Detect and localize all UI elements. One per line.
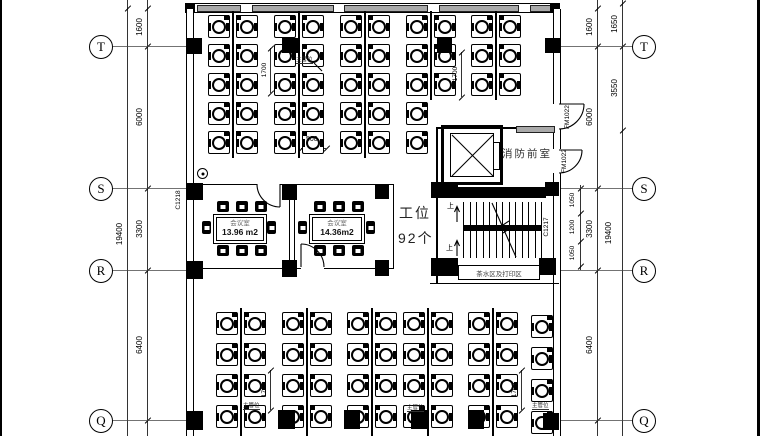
structural-column (186, 261, 203, 279)
chair-icon (344, 78, 358, 92)
monitor-icon (298, 343, 303, 348)
monitor-icon (232, 374, 237, 379)
chair-icon (314, 410, 328, 424)
workstation-desk (366, 71, 391, 97)
monitor-icon (499, 15, 504, 20)
grid-line-R-left (111, 270, 188, 271)
monitor-icon (232, 405, 237, 410)
workstation-desk (469, 71, 494, 97)
dimension-line (127, 0, 128, 436)
chair-icon (212, 20, 226, 34)
chair-icon (212, 107, 226, 121)
meeting-room2-door-gap (301, 264, 324, 269)
workstation-desk (429, 403, 454, 429)
chair-icon (314, 348, 328, 362)
grid-bubble-S-right: S (632, 177, 656, 201)
workstation-desk (404, 42, 429, 68)
workstation-desk (300, 100, 325, 126)
structural-column (186, 411, 203, 430)
meeting-room1-area: 13.96 m2 (222, 228, 258, 238)
monitor-icon (302, 15, 307, 20)
meeting-chair-icon (202, 221, 211, 234)
monitor-icon (496, 312, 501, 317)
monitor-icon (484, 374, 489, 379)
chair-icon (500, 348, 514, 362)
monitor-icon (236, 73, 241, 78)
workstation-desk (404, 129, 429, 155)
stair-up-label-2: 上 (446, 243, 453, 253)
monitor-icon (368, 102, 373, 107)
dim-left-3300: 3300 (134, 207, 144, 251)
elevator-car (450, 133, 494, 177)
monitor-icon (547, 347, 552, 352)
workstation-desk (280, 372, 305, 398)
workstation-desk (272, 129, 297, 155)
grid-bubble-S-left: S (89, 177, 113, 201)
chair-icon (351, 348, 365, 362)
workstation-desk (338, 71, 363, 97)
monitor-icon (431, 312, 436, 317)
workstation-desk (345, 310, 370, 336)
workstation-desk (338, 129, 363, 155)
workstation-desk (308, 372, 333, 398)
supervisor-tag-bottom3: 主管位 (532, 401, 549, 410)
dim-right-total: 19400 (603, 211, 613, 255)
workstation-desk (401, 372, 426, 398)
dim-1700-top-left: 1700 (259, 48, 269, 92)
monitor-icon (363, 312, 368, 317)
chair-icon (240, 107, 254, 121)
chair-icon (438, 20, 452, 34)
workstation-desk (404, 13, 429, 39)
workstation-desk (300, 71, 325, 97)
chair-icon (372, 107, 386, 121)
monitor-icon (290, 73, 295, 78)
chair-icon (306, 20, 320, 34)
chair-icon (410, 136, 424, 150)
monitor-icon (290, 131, 295, 136)
workstation-desk (234, 13, 259, 39)
workstation-desk (206, 100, 231, 126)
workstation-desk (466, 310, 491, 336)
chair-icon (535, 320, 549, 334)
structural-column (545, 38, 560, 53)
monitor-icon (484, 405, 489, 410)
grid-line-T-left (111, 46, 188, 47)
structural-column (282, 260, 297, 277)
workstation-desk (272, 100, 297, 126)
monitor-icon (363, 405, 368, 410)
workstation-desk (373, 403, 398, 429)
chair-icon (372, 20, 386, 34)
monitor-icon (484, 312, 489, 317)
chair-icon (475, 20, 489, 34)
desk-cluster (404, 100, 429, 158)
workstation-desk (234, 129, 259, 155)
north-window-2 (252, 5, 334, 12)
east-wall-upper (553, 9, 561, 104)
stair-up-label-1: 上 (447, 201, 454, 211)
chair-icon (410, 20, 424, 34)
chair-icon (472, 379, 486, 393)
dim-500: 500 (306, 136, 318, 143)
monitor-icon (419, 374, 424, 379)
monitor-icon (375, 343, 380, 348)
meeting-chair-icon (298, 221, 307, 234)
workstation-desk (214, 403, 239, 429)
meeting-room1-table: 会议室 13.96 m2 (213, 214, 267, 244)
supervisor-tag-bottom2: 主管位 (407, 403, 424, 412)
monitor-icon (363, 374, 368, 379)
workstation-desk (429, 372, 454, 398)
structural-column (468, 410, 484, 429)
monitor-icon (356, 15, 361, 20)
tea-print-text: 茶水区及打印区 (476, 268, 522, 278)
desk-partition (232, 11, 235, 158)
chair-icon (344, 20, 358, 34)
chair-icon (306, 107, 320, 121)
chair-icon (344, 107, 358, 121)
chair-icon (407, 348, 421, 362)
workstation-desk (214, 341, 239, 367)
grid-bubble-Q-right: Q (632, 409, 656, 433)
chair-icon (351, 379, 365, 393)
monitor-icon (298, 405, 303, 410)
monitor-icon (375, 312, 380, 317)
workstation-desk (497, 42, 522, 68)
workstation-desk (529, 377, 554, 403)
dimension-line (622, 0, 623, 436)
dim-left-6000: 6000 (134, 95, 144, 139)
monitor-icon (375, 374, 380, 379)
meeting-room1-door-gap (257, 182, 280, 187)
dim-right-3300: 3300 (584, 207, 594, 251)
chair-icon (472, 317, 486, 331)
monitor-icon (422, 102, 427, 107)
monitor-icon (434, 73, 439, 78)
monitor-icon (244, 312, 249, 317)
chair-icon (372, 78, 386, 92)
chair-icon (379, 317, 393, 331)
chair-icon (435, 379, 449, 393)
chair-icon (410, 49, 424, 63)
workstation-desk (345, 341, 370, 367)
structural-column (282, 38, 298, 53)
stair-north-wall (451, 187, 546, 198)
workstation-desk (469, 13, 494, 39)
monitor-icon (368, 15, 373, 20)
pipe-symbol (197, 168, 208, 179)
workstation-count-line1: 工位 (399, 203, 431, 223)
desk-partition (371, 308, 374, 436)
workstation-desk (373, 341, 398, 367)
chair-icon (278, 20, 292, 34)
monitor-icon (419, 343, 424, 348)
grid-line-Q-right (559, 420, 633, 421)
tea-print-area-label: 茶水区及打印区 (458, 265, 540, 280)
monitor-icon (356, 44, 361, 49)
floor-plan-canvas: T S R Q T S R Q 1600 6000 3300 6400 1940… (0, 0, 760, 436)
meeting-room2-table: 会议室 14.36m2 (309, 214, 365, 244)
chair-icon (535, 352, 549, 366)
chair-icon (344, 136, 358, 150)
chair-icon (379, 410, 393, 424)
chair-icon (503, 78, 517, 92)
workstation-desk (494, 341, 519, 367)
fire-lobby-label: 消防前室 (502, 146, 552, 161)
structural-column (431, 182, 458, 198)
monitor-icon (298, 374, 303, 379)
structural-column (375, 184, 389, 199)
chair-icon (407, 317, 421, 331)
workstation-desk (242, 310, 267, 336)
monitor-icon (244, 374, 249, 379)
chair-icon (372, 136, 386, 150)
workstation-desk (234, 71, 259, 97)
workstation-desk (300, 13, 325, 39)
meeting-chair-icon (352, 201, 364, 212)
chair-icon (248, 410, 262, 424)
workstation-desk (366, 100, 391, 126)
monitor-icon (431, 374, 436, 379)
monitor-icon (236, 15, 241, 20)
chair-icon (410, 107, 424, 121)
chair-icon (220, 410, 234, 424)
fire-door-code-upper: FM1022 (562, 95, 572, 139)
meeting-chair-icon (217, 245, 229, 256)
chair-icon (212, 49, 226, 63)
workstation-desk (206, 71, 231, 97)
desk-partition (495, 11, 498, 100)
chair-icon (286, 379, 300, 393)
workstation-desk (494, 310, 519, 336)
monitor-icon (484, 343, 489, 348)
monitor-icon (496, 374, 501, 379)
meeting-chair-icon (255, 245, 267, 256)
chair-icon (212, 136, 226, 150)
monitor-icon (224, 44, 229, 49)
workstation-desk (206, 42, 231, 68)
dim-right-1650: 1650 (609, 2, 619, 46)
dim-right-1600: 1600 (584, 5, 594, 49)
workstation-desk (404, 100, 429, 126)
chair-icon (435, 317, 449, 331)
window-code-C1217: C1217 (541, 205, 551, 249)
dim-left-total: 19400 (114, 212, 124, 256)
chair-icon (278, 136, 292, 150)
monitor-icon (236, 131, 241, 136)
workstation-desk (234, 100, 259, 126)
monitor-icon (302, 102, 307, 107)
meeting-chair-icon (236, 245, 248, 256)
workstation-desk (366, 42, 391, 68)
dim-1700-bottom-right: 1700 (509, 368, 519, 412)
monitor-icon (302, 73, 307, 78)
structural-column (278, 410, 295, 429)
workstation-desk (469, 42, 494, 68)
monitor-icon (290, 102, 295, 107)
dim-right-1050b: 1050 (567, 231, 577, 275)
workstation-desk (497, 13, 522, 39)
structural-column (431, 258, 458, 276)
desk-partition (298, 11, 301, 158)
chair-icon (248, 317, 262, 331)
grid-bubble-R-right: R (632, 259, 656, 283)
structural-column (186, 183, 203, 200)
monitor-icon (499, 44, 504, 49)
workstation-desk (206, 129, 231, 155)
desk-partition (306, 308, 309, 436)
chair-icon (500, 410, 514, 424)
workstation-desk (373, 310, 398, 336)
dim-1700-top-right: 1700 (450, 52, 460, 96)
monitor-icon (232, 312, 237, 317)
dimension-line (580, 185, 581, 270)
elevator-door (493, 142, 500, 170)
workstation-desk (497, 71, 522, 97)
chair-icon (278, 78, 292, 92)
workstation-desk (338, 13, 363, 39)
monitor-icon (368, 44, 373, 49)
chair-icon (306, 78, 320, 92)
structural-column (539, 258, 556, 275)
meeting-chair-icon (255, 201, 267, 212)
chair-icon (435, 348, 449, 362)
monitor-icon (244, 343, 249, 348)
workstation-desk (429, 310, 454, 336)
monitor-icon (419, 312, 424, 317)
workstation-desk (280, 341, 305, 367)
dim-1700-bottom-left: 1700 (259, 368, 269, 412)
north-window-4 (439, 5, 519, 12)
north-window-1 (197, 5, 241, 12)
workstation-desk (429, 341, 454, 367)
dimension-line (521, 370, 522, 410)
structural-column (375, 260, 389, 276)
workstation-desk (529, 345, 554, 371)
workstation-desk (366, 13, 391, 39)
workstation-desk (401, 310, 426, 336)
chair-icon (240, 78, 254, 92)
meeting-chair-icon (267, 221, 276, 234)
workstation-desk (272, 13, 297, 39)
monitor-icon (356, 131, 361, 136)
monitor-icon (236, 102, 241, 107)
workstation-desk (366, 129, 391, 155)
chair-icon (248, 348, 262, 362)
workstation-desk (308, 341, 333, 367)
meeting-chair-icon (217, 201, 229, 212)
workstation-desk (345, 372, 370, 398)
desk-partition (364, 11, 367, 158)
workstation-desk (373, 372, 398, 398)
meeting-chair-icon (366, 221, 375, 234)
monitor-icon (422, 44, 427, 49)
workstation-desk (466, 372, 491, 398)
chair-icon (475, 49, 489, 63)
monitor-icon (487, 44, 492, 49)
meeting-chair-icon (333, 201, 345, 212)
structural-column (437, 38, 452, 53)
chair-icon (286, 317, 300, 331)
workstation-desk (401, 341, 426, 367)
chair-icon (220, 348, 234, 362)
east-wall-lower (553, 173, 561, 436)
chair-icon (503, 49, 517, 63)
workstation-desk (242, 341, 267, 367)
desk-cluster (469, 13, 522, 100)
monitor-icon (487, 15, 492, 20)
chair-icon (351, 317, 365, 331)
monitor-icon (290, 15, 295, 20)
meeting-room2-area: 14.36m2 (320, 228, 354, 238)
monitor-icon (422, 73, 427, 78)
dim-left-1600: 1600 (134, 5, 144, 49)
monitor-icon (434, 15, 439, 20)
workstation-desk (466, 341, 491, 367)
fire-door-code-lower: FM1022 (559, 139, 569, 183)
monitor-icon (310, 343, 315, 348)
monitor-icon (302, 44, 307, 49)
monitor-icon (310, 374, 315, 379)
dim-right-6400: 6400 (584, 323, 594, 367)
workstation-desk (214, 310, 239, 336)
grid-bubble-T-right: T (632, 35, 656, 59)
meeting-chair-icon (236, 201, 248, 212)
monitor-icon (375, 405, 380, 410)
meeting-chair-icon (333, 245, 345, 256)
monitor-icon (499, 73, 504, 78)
monitor-icon (224, 102, 229, 107)
monitor-icon (356, 102, 361, 107)
monitor-icon (431, 405, 436, 410)
workstation-desk (280, 310, 305, 336)
workstation-desk (308, 310, 333, 336)
grid-bubble-T-left: T (89, 35, 113, 59)
chair-icon (240, 20, 254, 34)
workstation-desk (272, 71, 297, 97)
desk-partition (430, 11, 433, 100)
chair-icon (407, 379, 421, 393)
monitor-icon (547, 315, 552, 320)
monitor-icon (310, 405, 315, 410)
monitor-icon (422, 15, 427, 20)
chair-icon (212, 78, 226, 92)
structural-column (344, 410, 360, 429)
dim-right-6000: 6000 (584, 95, 594, 139)
dimension-line (270, 48, 271, 93)
meeting-chair-icon (352, 245, 364, 256)
workstation-count-line2: 92个 (398, 228, 434, 248)
workstation-desk (529, 313, 554, 339)
meeting-chair-icon (314, 201, 326, 212)
chair-icon (240, 136, 254, 150)
chair-icon (535, 384, 549, 398)
stair-south-wall (430, 283, 559, 284)
monitor-icon (356, 73, 361, 78)
grid-line-T-right (559, 46, 633, 47)
monitor-icon (368, 131, 373, 136)
chair-icon (500, 317, 514, 331)
chair-icon (220, 317, 234, 331)
structural-column (543, 413, 559, 430)
desk-partition (240, 308, 243, 436)
dimension-line (147, 0, 148, 436)
chair-icon (344, 49, 358, 63)
monitor-icon (368, 73, 373, 78)
monitor-icon (363, 343, 368, 348)
lobby-north-window (516, 126, 555, 133)
